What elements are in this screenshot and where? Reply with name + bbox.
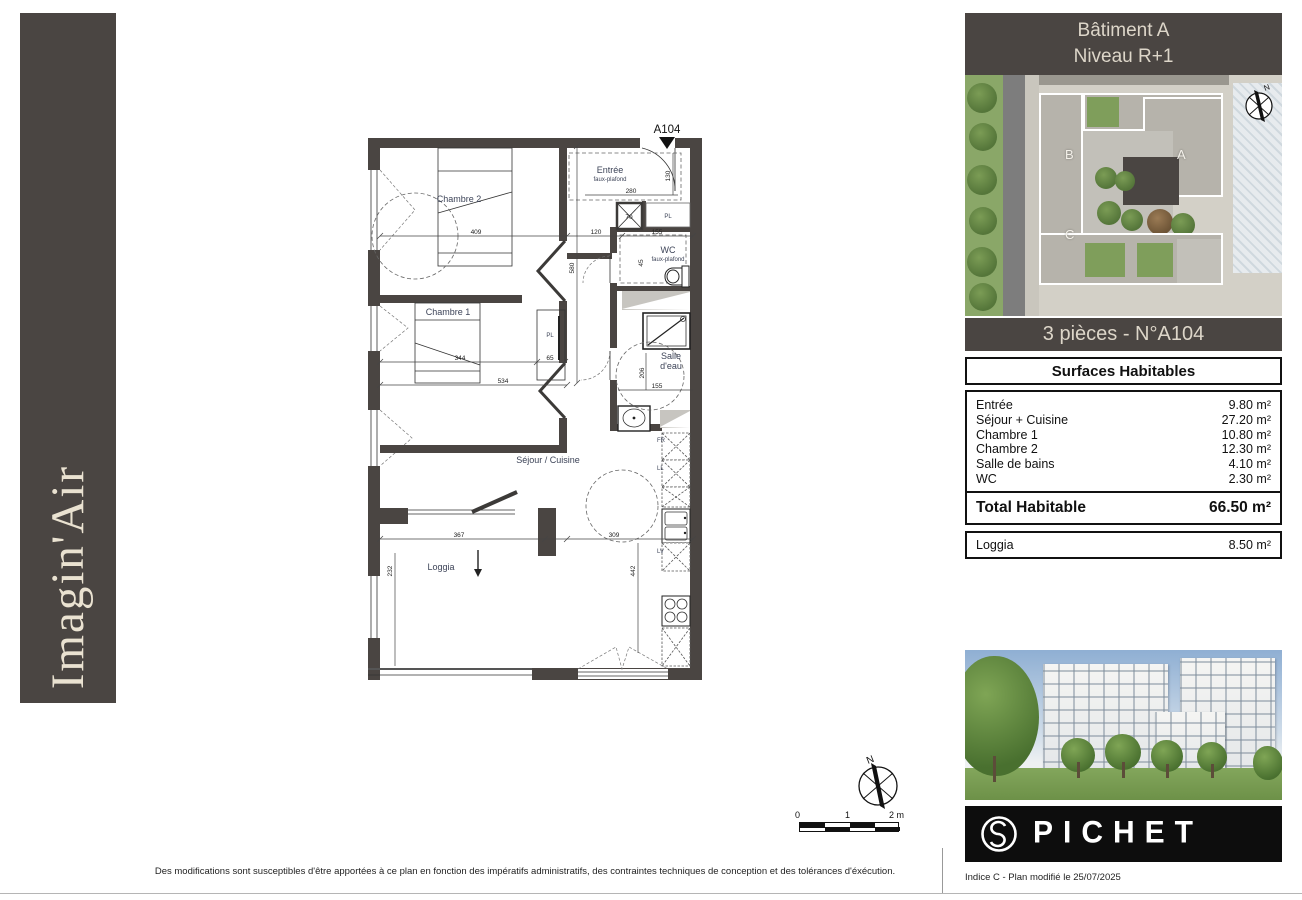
kitchen-column: FR LL LV	[657, 433, 690, 666]
site-compass: N	[1237, 81, 1281, 125]
door-chambre1	[540, 363, 565, 418]
entrance-door-arc	[642, 148, 675, 191]
wall-wc-left-b	[610, 283, 617, 348]
window-sejour-bottom	[578, 647, 668, 679]
surfaces-table: Entrée9.80 m² Séjour + Cuisine27.20 m² C…	[965, 390, 1282, 525]
dim-442: 442	[630, 565, 637, 576]
dim-409: 409	[471, 229, 482, 236]
table-row: Chambre 110.80 m²	[976, 428, 1271, 443]
label-wc: WC	[661, 245, 676, 255]
site-label-c: C	[1065, 227, 1074, 242]
dim-155a: 155	[652, 229, 663, 236]
total-row: Total Habitable66.50 m²	[967, 491, 1280, 523]
loggia-row: Loggia8.50 m²	[965, 531, 1282, 559]
scale-bar-graphic	[799, 822, 899, 832]
scale-1: 1	[845, 810, 850, 820]
disclaimer-text: Des modifications sont susceptibles d'êt…	[130, 866, 920, 877]
loggia-rail	[368, 669, 532, 675]
dim-309: 309	[609, 532, 620, 539]
footer-divider	[942, 848, 943, 893]
floor-plan: A104	[360, 113, 720, 705]
label-sejour: Séjour / Cuisine	[516, 455, 580, 465]
wall-ch1-sejour	[380, 445, 567, 453]
label-salle-1: Salle	[661, 351, 681, 361]
wall-loggia-left	[368, 508, 408, 524]
page: Imagin'Air A104	[0, 0, 1302, 900]
dim-120: 120	[591, 229, 602, 236]
circle-sejour	[586, 470, 658, 542]
site-label-a: A	[1177, 147, 1186, 162]
plan-compass: N	[840, 752, 910, 814]
dim-580: 580	[569, 262, 576, 273]
door-chambre2	[538, 241, 565, 301]
door-sde-arc	[581, 351, 610, 380]
scale-2: 2 m	[889, 810, 904, 820]
site-sidewalk	[1025, 75, 1039, 316]
label-entree: Entrée	[597, 165, 624, 175]
window-loggia-sejour	[408, 492, 517, 514]
washer	[618, 406, 650, 431]
svg-text:N: N	[1263, 82, 1272, 93]
unit-title-bar: 3 pièces - N°A104	[965, 318, 1282, 351]
table-row: WC2.30 m²	[976, 472, 1271, 487]
wall-hall-low	[559, 418, 567, 453]
brand-vertical-text: Imagin'Air	[41, 465, 95, 703]
bed-chambre2	[438, 148, 512, 266]
dim-367: 367	[454, 532, 465, 539]
dim-70: 70	[625, 214, 633, 221]
label-ll: LL	[657, 466, 664, 472]
wall-loggia-right	[538, 508, 556, 556]
label-wc-fp: faux-plafond	[651, 257, 684, 263]
dim-206: 206	[639, 367, 646, 378]
footer-note: Indice C - Plan modifié le 25/07/2025	[965, 872, 1121, 883]
wall-top	[368, 138, 640, 148]
loggia-arrow-icon	[474, 550, 482, 577]
dim-155b: 155	[652, 383, 663, 390]
dim-130: 130	[665, 170, 672, 181]
dim-534: 534	[498, 378, 509, 385]
site-road	[1003, 75, 1025, 316]
label-pl-entree: PL	[664, 214, 672, 220]
site-plan: B A C N	[965, 75, 1282, 316]
building-level: Niveau R+1	[1074, 44, 1174, 70]
compass-n-label: N	[865, 754, 876, 767]
dim-280: 280	[626, 188, 637, 195]
window-loggia-left	[368, 576, 380, 638]
window-sejour	[368, 410, 412, 466]
wall-right	[690, 138, 702, 680]
building-name: Bâtiment A	[1078, 18, 1170, 44]
scale-0: 0	[795, 810, 800, 820]
window-chambre2	[368, 170, 415, 250]
label-loggia: Loggia	[427, 562, 454, 572]
pichet-logo-word: PICHET	[1033, 815, 1203, 851]
label-chambre2: Chambre 2	[437, 194, 482, 204]
table-row: Salle de bains4.10 m²	[976, 457, 1271, 472]
label-fr: FR	[657, 438, 666, 444]
unit-title: 3 pièces - N°A104	[1043, 323, 1204, 346]
building-render	[965, 650, 1282, 800]
pichet-logo: PICHET	[965, 806, 1282, 862]
window-chambre1	[368, 306, 408, 351]
wall-sde-left	[610, 380, 617, 431]
shower	[643, 313, 690, 349]
page-bottom-rule	[0, 893, 1302, 894]
door-wc-arc	[583, 256, 610, 283]
entrance-arrow-icon	[659, 137, 675, 149]
label-lv: LV	[657, 549, 664, 555]
label-salle-2: d'eau	[660, 361, 682, 371]
wall-hall-entree	[567, 253, 612, 259]
dim-232: 232	[387, 565, 394, 576]
dim-65: 65	[546, 355, 554, 362]
table-row: Chambre 212.30 m²	[976, 442, 1271, 457]
site-road-top	[1039, 75, 1229, 85]
surfaces-title: Surfaces Habitables	[1052, 363, 1195, 380]
plan-unit-label: A104	[654, 124, 681, 136]
scale-bar: 0 1 2 m	[795, 810, 910, 832]
surfaces-title-box: Surfaces Habitables	[965, 357, 1282, 385]
label-chambre1: Chambre 1	[426, 307, 471, 317]
table-row: Entrée9.80 m²	[976, 398, 1271, 413]
dim-344: 344	[455, 355, 466, 362]
label-pl-ch1: PL	[546, 333, 554, 339]
label-entree-fp: faux-plafond	[593, 177, 626, 183]
site-label-b: B	[1065, 147, 1074, 162]
wall-hall-top	[559, 148, 567, 241]
pichet-logo-icon	[979, 814, 1019, 854]
table-row: Séjour + Cuisine27.20 m²	[976, 413, 1271, 428]
wall-ch2-ch1	[380, 295, 522, 303]
toilet	[665, 266, 689, 287]
wall-wc-bottom	[610, 286, 693, 291]
dim-45: 45	[638, 259, 645, 267]
brand-banner: Imagin'Air	[20, 13, 116, 703]
building-header: Bâtiment A Niveau R+1	[965, 13, 1282, 75]
